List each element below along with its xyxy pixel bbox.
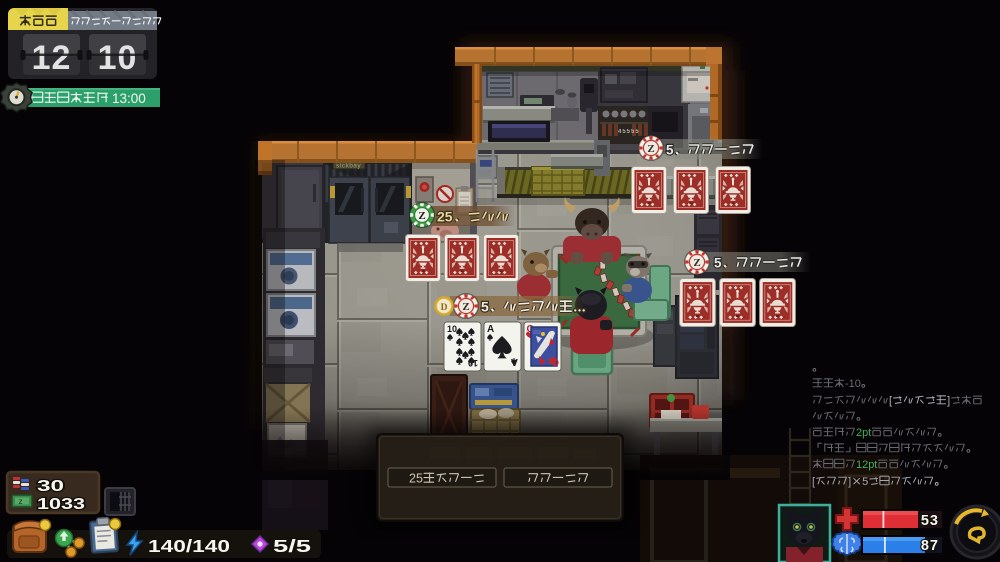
svg-text:t: t xyxy=(874,459,877,471)
svg-text:Z: Z xyxy=(19,499,23,506)
svg-text:[: [ xyxy=(889,395,892,407)
svg-text:53: 53 xyxy=(921,513,939,529)
svg-text:5: 5 xyxy=(481,299,489,315)
svg-text:5: 5 xyxy=(714,256,722,271)
svg-text:D: D xyxy=(441,303,448,313)
svg-text:5: 5 xyxy=(862,476,868,488)
svg-text:25: 25 xyxy=(409,472,423,486)
svg-text:13:00: 13:00 xyxy=(112,91,146,106)
svg-text:]: ] xyxy=(947,395,950,407)
svg-text:Q: Q xyxy=(551,356,559,367)
svg-text:A: A xyxy=(487,324,494,335)
svg-text:140/140: 140/140 xyxy=(148,536,230,556)
svg-text:25: 25 xyxy=(437,209,453,225)
svg-text:5/5: 5/5 xyxy=(273,536,311,556)
svg-text:10: 10 xyxy=(447,324,457,334)
svg-text:12: 12 xyxy=(32,39,72,77)
svg-text:t: t xyxy=(868,427,871,439)
svg-text:1033: 1033 xyxy=(37,496,85,513)
svg-text:10: 10 xyxy=(468,358,478,368)
svg-text:10: 10 xyxy=(98,39,138,77)
svg-text:-10: -10 xyxy=(845,378,861,390)
svg-text:[: [ xyxy=(812,476,815,488)
svg-text:5: 5 xyxy=(666,143,674,158)
svg-text:]: ] xyxy=(848,476,851,488)
svg-text:30: 30 xyxy=(37,478,64,495)
svg-text:87: 87 xyxy=(921,538,939,554)
